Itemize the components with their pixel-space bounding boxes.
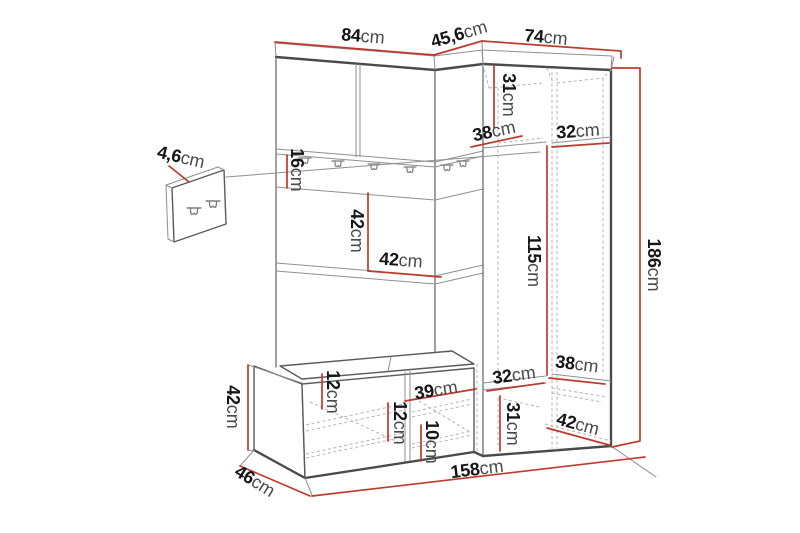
dim-label-bottom-shelf-height: 31cm	[503, 402, 523, 445]
dim-label-total-height: 186cm	[644, 238, 664, 291]
diagram-page: 84cm 45,6cm 74cm 4,6cm 16cm 42cm 42cm 31…	[0, 0, 800, 533]
dim-label-open-section-width: 42cm	[379, 249, 424, 272]
dim-label-open-section-height: 42cm	[347, 209, 367, 252]
dim-label-bench-top-offset: 12cm	[323, 370, 343, 413]
dim-label-bench-height: 42cm	[223, 385, 243, 428]
dim-label-right-top-width: 74cm	[524, 25, 569, 49]
dim-label-hanging-space-height: 115cm	[524, 235, 544, 287]
dim-label-hook-rail-height: 16cm	[287, 148, 307, 191]
dim-label-top-shelf-width: 32cm	[556, 120, 601, 143]
furniture-dimension-diagram: 84cm 45,6cm 74cm 4,6cm 16cm 42cm 42cm 31…	[0, 0, 800, 533]
dim-label-bench-shelf-spacing: 12cm	[390, 401, 410, 444]
dim-label-left-top-width: 84cm	[341, 24, 386, 47]
dim-label-bench-shelf-height: 10cm	[422, 420, 442, 463]
dim-label-top-shelf-height: 31cm	[499, 73, 519, 116]
